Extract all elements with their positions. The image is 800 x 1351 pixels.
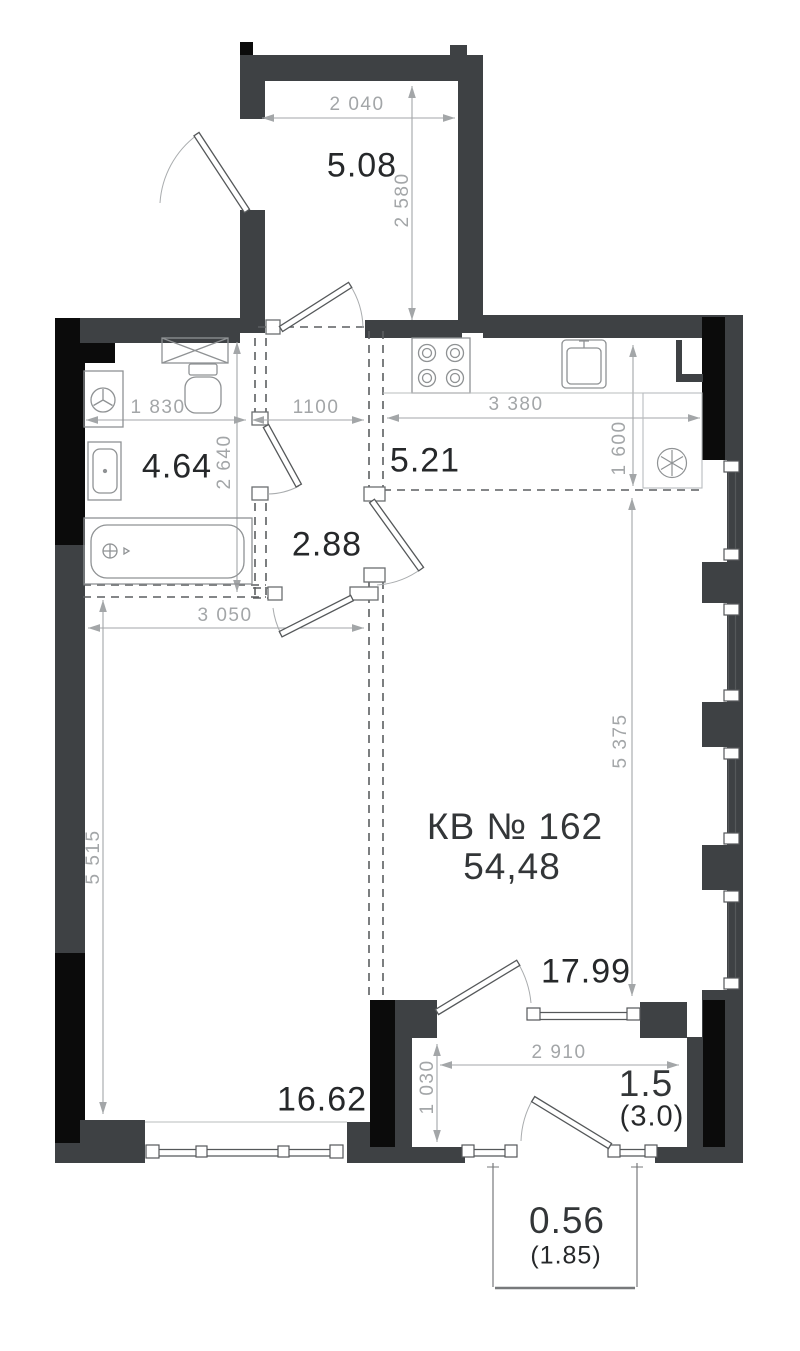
room-area-balcony: 0.56 — [529, 1200, 605, 1242]
floor-plan: 5.08 2 040 2 580 4.64 1 830 2 640 2.88 1… — [0, 0, 800, 1351]
room-area-living: 17.99 — [541, 953, 631, 992]
door-loggia-to-balcony — [521, 1097, 612, 1149]
vent-shaft-icon — [162, 338, 228, 363]
dim-bedroom-height: 5 515 — [83, 829, 105, 884]
door-bathroom — [263, 425, 301, 494]
door-living-to-loggia — [435, 960, 531, 1014]
apartment-total-area: 54,48 — [463, 846, 561, 888]
doors — [160, 132, 612, 1148]
room-area-hallway: 2.88 — [292, 526, 362, 565]
dim-bathroom-width: 1 830 — [130, 397, 185, 419]
window-living — [527, 1008, 640, 1020]
dim-entry-width: 2 040 — [329, 94, 384, 116]
toilet-icon — [185, 364, 221, 413]
room-area-entry: 5.08 — [327, 147, 397, 186]
room-area-loggia-full: (3.0) — [620, 1101, 685, 1134]
windows-loggia-bottom — [462, 1145, 657, 1157]
door-apartment-entry — [160, 132, 250, 212]
door-bedroom — [273, 595, 353, 637]
ventilation-fan-icon — [658, 449, 687, 478]
dim-hallway-width: 1100 — [293, 397, 340, 419]
sink-icon — [88, 442, 121, 500]
dim-kitchen-width: 3 380 — [488, 394, 543, 416]
door-entry-to-hall — [279, 282, 363, 331]
dim-kitchen-height: 1 600 — [609, 420, 631, 475]
window-bedroom — [146, 1145, 343, 1158]
dim-entry-height: 2 580 — [392, 172, 414, 227]
windows-right-wall — [724, 461, 739, 989]
dim-bathroom-height: 2 640 — [214, 434, 236, 489]
room-area-loggia: 1.5 — [619, 1063, 673, 1105]
room-area-bedroom: 16.62 — [277, 1081, 367, 1120]
stove-icon — [412, 338, 470, 393]
dim-living-height: 5 375 — [610, 713, 632, 768]
bathtub-icon — [84, 518, 252, 584]
washing-machine-icon — [84, 371, 123, 427]
dim-bedroom-width: 3 050 — [197, 605, 252, 627]
room-area-bathroom: 4.64 — [142, 448, 212, 487]
dim-loggia-height: 1 030 — [417, 1059, 439, 1114]
dim-loggia-width: 2 910 — [531, 1042, 586, 1064]
apartment-number: КВ № 162 — [427, 806, 603, 848]
room-area-balcony-full: (1.85) — [530, 1242, 601, 1271]
room-area-kitchen: 5.21 — [390, 442, 460, 481]
kitchen-sink-icon — [562, 340, 606, 388]
